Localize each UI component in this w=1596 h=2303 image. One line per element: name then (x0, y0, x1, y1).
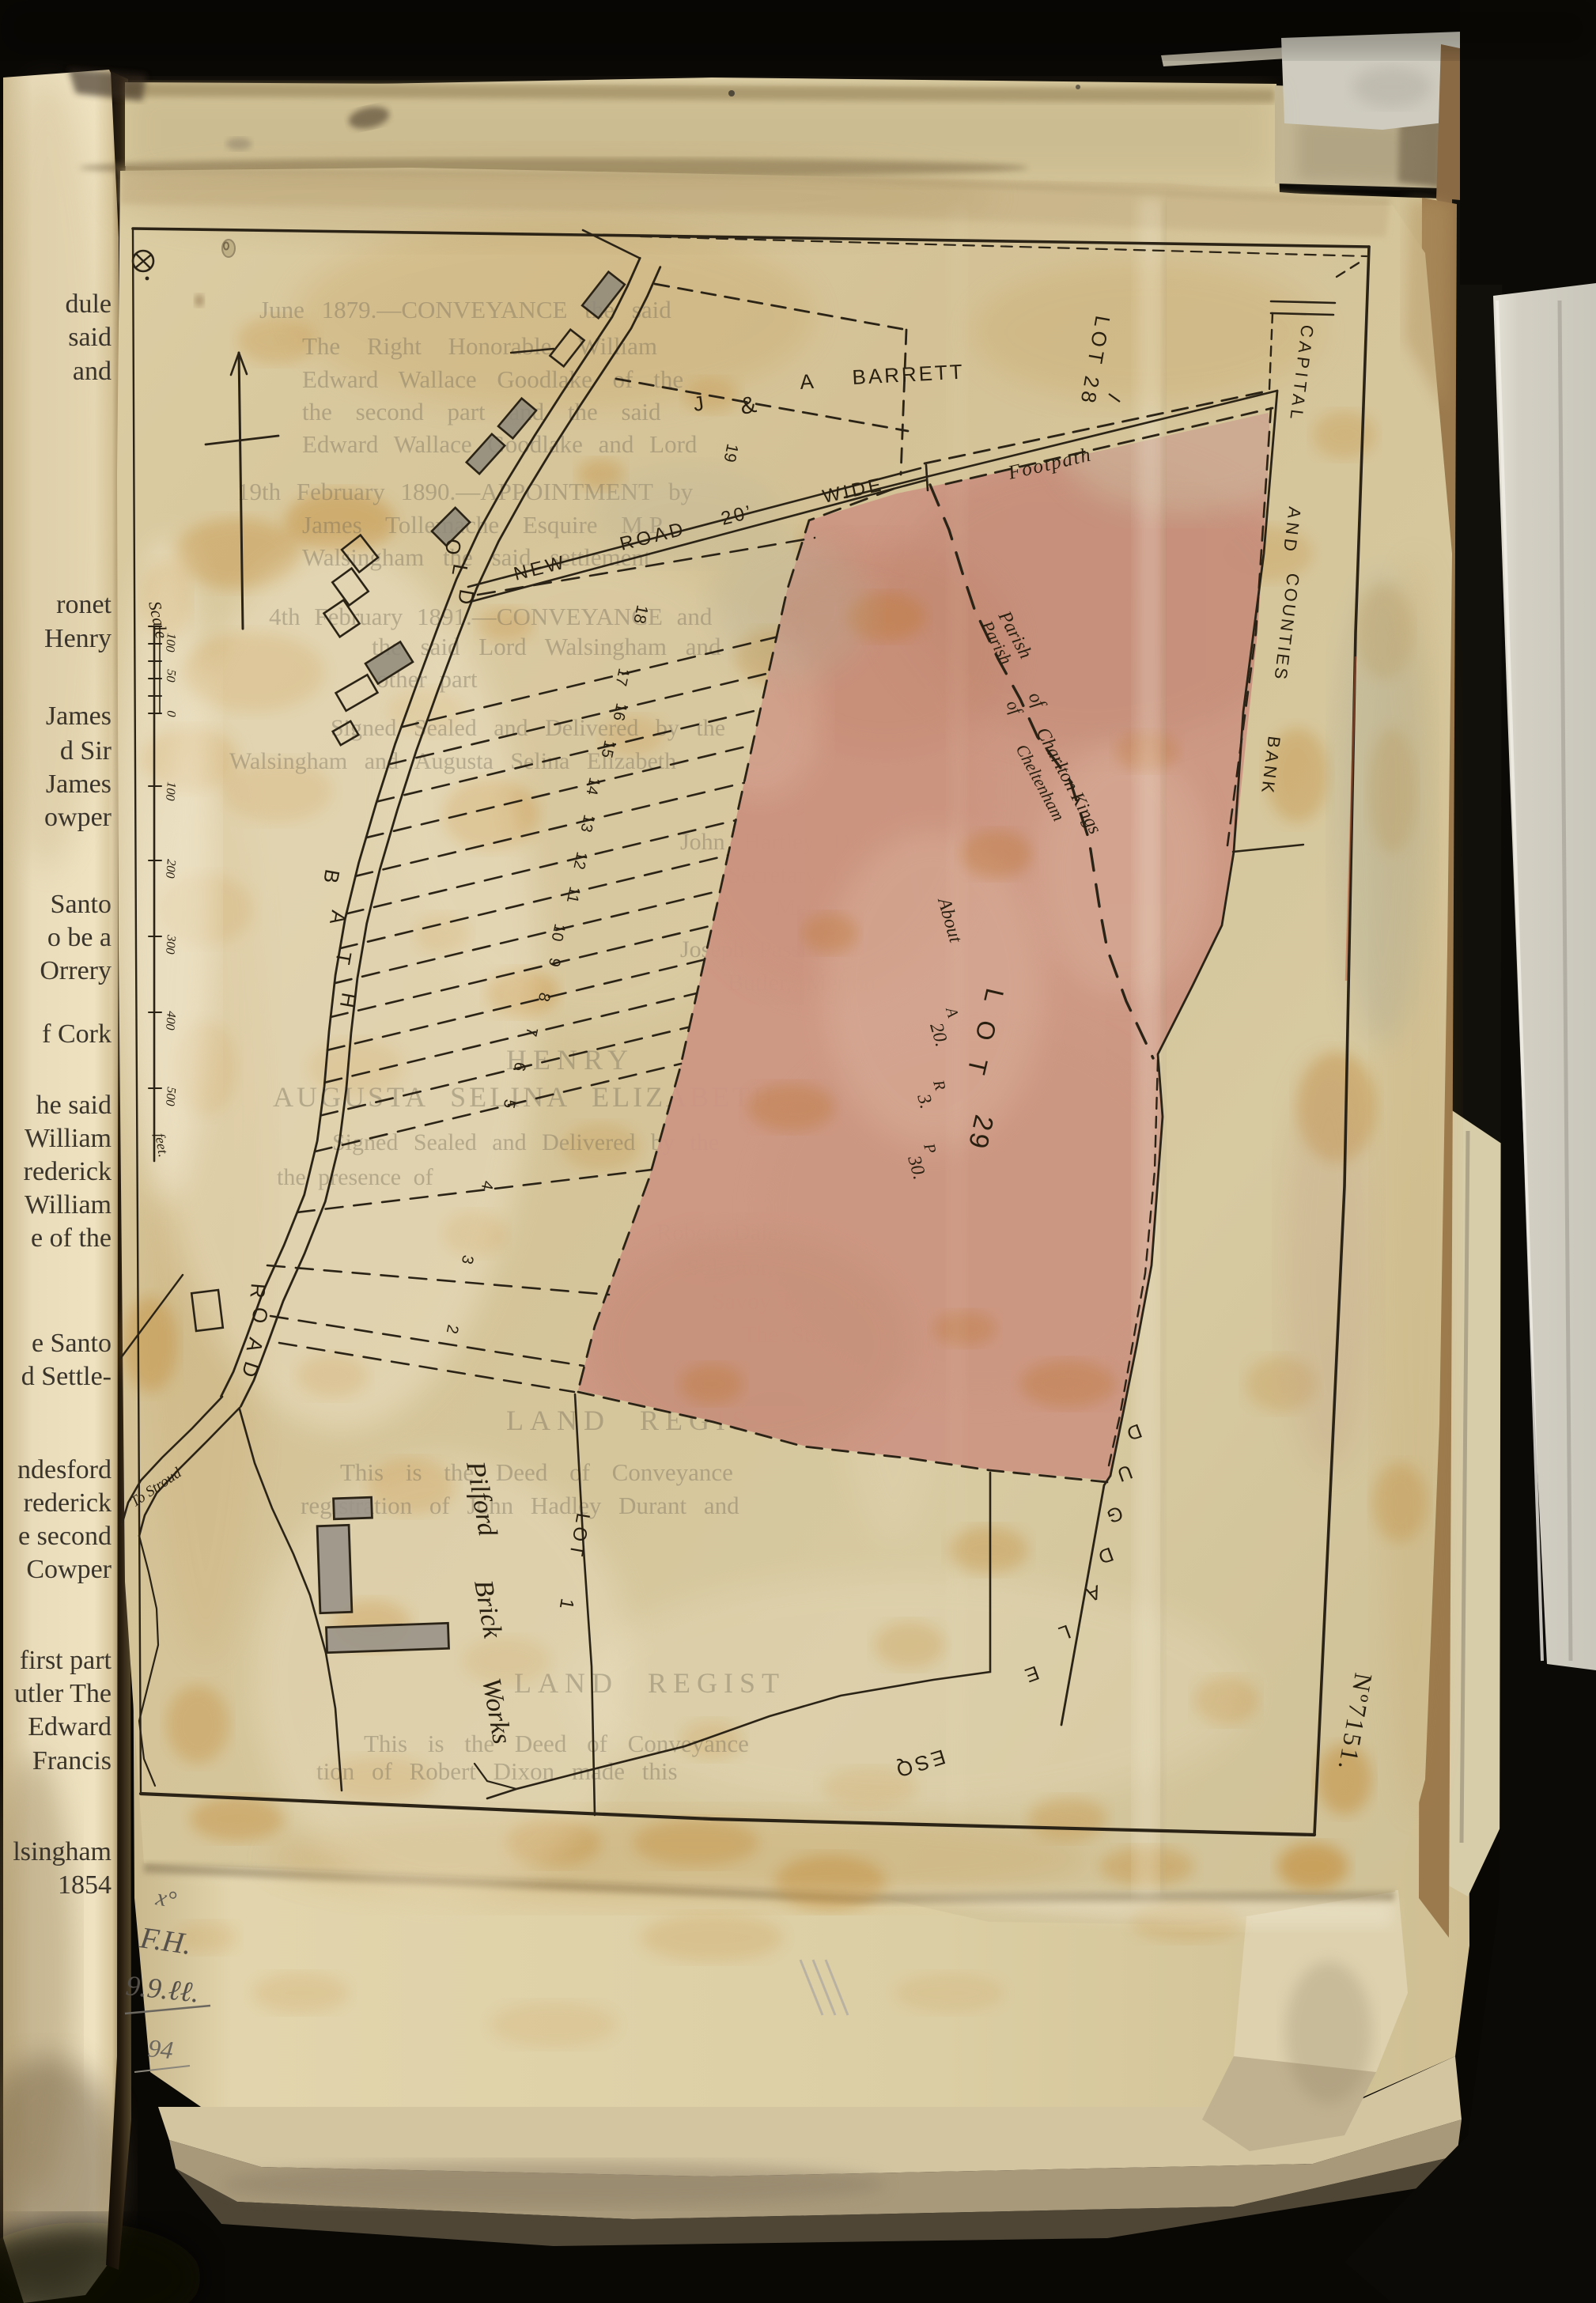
svg-text:he said: he said (36, 1091, 112, 1120)
svg-text:17: 17 (611, 667, 632, 687)
svg-text:dule: dule (65, 289, 112, 319)
svg-text:12: 12 (569, 850, 590, 871)
svg-text:e of the: e of the (31, 1223, 112, 1253)
svg-text:e second: e second (18, 1522, 112, 1551)
svg-text:Cowper: Cowper (26, 1555, 112, 1584)
svg-text:rederick: rederick (24, 1157, 112, 1186)
svg-text:d Settle-: d Settle- (21, 1362, 112, 1391)
svg-text:ronet: ronet (56, 590, 112, 619)
svg-text:100: 100 (163, 781, 178, 801)
svg-text:200: 200 (163, 859, 178, 879)
svg-text:William: William (25, 1124, 112, 1153)
svg-text:ndesford: ndesford (17, 1455, 112, 1484)
svg-text:94: 94 (146, 2033, 175, 2064)
svg-text:19: 19 (720, 442, 741, 464)
svg-text:e Santo: e Santo (32, 1329, 112, 1358)
svg-text:f Cork: f Cork (42, 1019, 112, 1049)
svg-text:LAND REGIST: LAND REGIST (514, 1667, 785, 1699)
svg-text:the presence of: the presence of (277, 1164, 433, 1190)
svg-text:13: 13 (577, 813, 597, 834)
svg-text:100: 100 (163, 633, 178, 652)
svg-text:This is the Deed of Conveyance: This is the Deed of Conveyance (340, 1458, 733, 1486)
svg-text:William: William (25, 1190, 112, 1220)
svg-text:d Sir: d Sir (60, 736, 112, 766)
svg-text:owper: owper (44, 803, 112, 832)
svg-text:O: O (248, 1306, 273, 1325)
svg-text:18: 18 (630, 603, 651, 626)
svg-text:A: A (799, 369, 815, 394)
svg-text:300: 300 (163, 934, 178, 955)
svg-text:50: 50 (164, 669, 178, 683)
svg-text:lsingham: lsingham (13, 1837, 112, 1866)
svg-text:Edward Wallace Goodlake of the: Edward Wallace Goodlake of the (302, 365, 683, 393)
svg-text:o be a: o be a (47, 923, 112, 952)
svg-text:10: 10 (547, 922, 568, 943)
svg-text:1854: 1854 (58, 1870, 112, 1900)
svg-text:the said Lord Walsingham and: the said Lord Walsingham and (372, 633, 721, 660)
svg-text:The Right Honorable William: The Right Honorable William (302, 332, 657, 360)
svg-text:Santo: Santo (51, 890, 112, 919)
svg-text:16: 16 (609, 701, 630, 722)
svg-text:said: said (68, 323, 112, 352)
svg-text:15: 15 (597, 739, 618, 759)
svg-text:500: 500 (163, 1087, 178, 1106)
svg-text:rederick: rederick (24, 1488, 112, 1518)
svg-text:R: R (245, 1282, 270, 1299)
svg-text:Henry: Henry (44, 624, 112, 653)
svg-text:400: 400 (163, 1011, 178, 1030)
svg-text:first part: first part (20, 1646, 112, 1675)
svg-text:utler The: utler The (14, 1679, 112, 1708)
svg-text:Edward: Edward (28, 1712, 112, 1741)
svg-text:and: and (73, 357, 112, 386)
svg-text:14: 14 (582, 776, 603, 796)
svg-text:Francis: Francis (32, 1746, 112, 1775)
svg-text:James: James (46, 701, 112, 731)
svg-text:the second part and the said: the second part and the said (302, 398, 661, 425)
svg-text:James: James (46, 770, 112, 799)
svg-text:0: 0 (164, 710, 178, 717)
svg-text:Signed Sealed and Delivered by: Signed Sealed and Delivered by the (331, 715, 725, 741)
svg-text:Orrery: Orrery (40, 956, 112, 985)
